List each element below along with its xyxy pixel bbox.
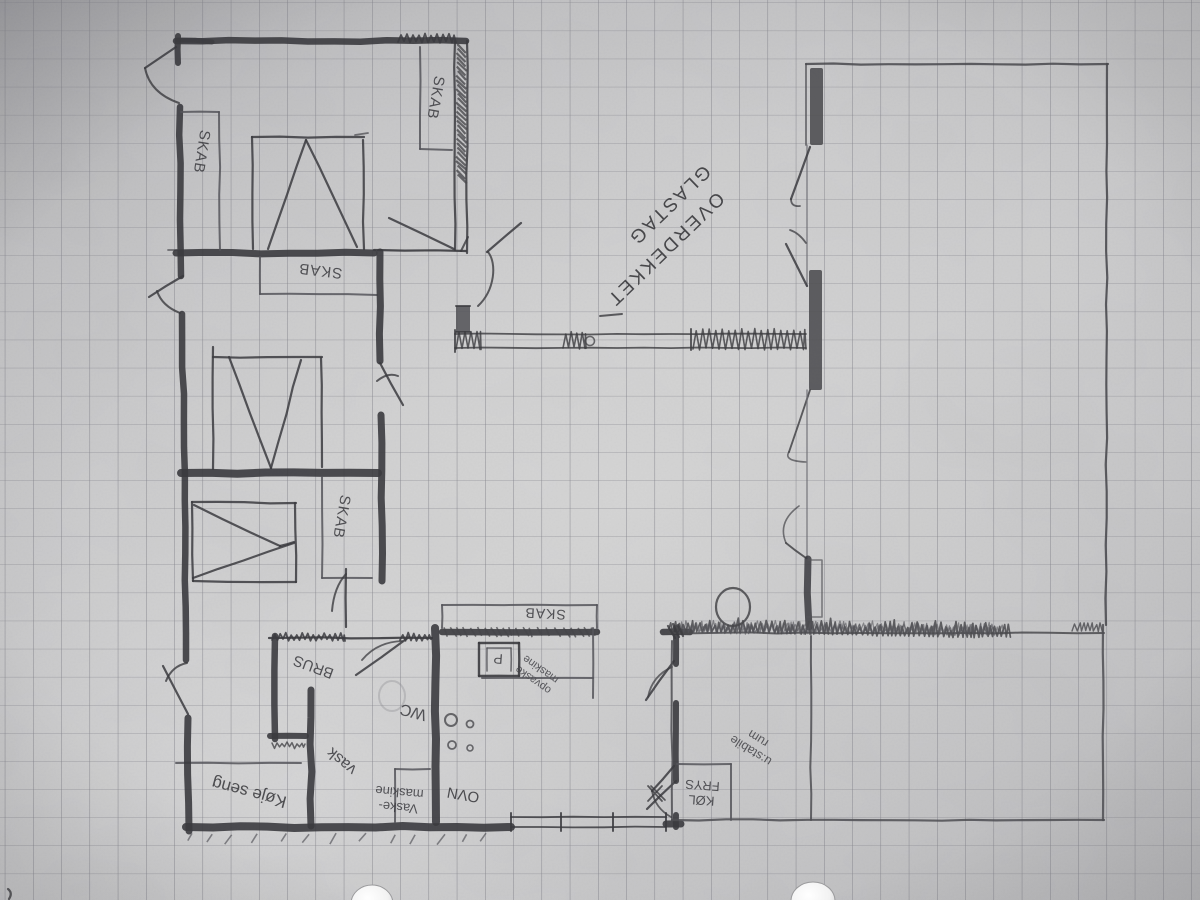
svg-text:SKAB: SKAB xyxy=(524,605,566,623)
svg-text:FRYS: FRYS xyxy=(684,777,720,794)
svg-text:P: P xyxy=(493,651,503,668)
